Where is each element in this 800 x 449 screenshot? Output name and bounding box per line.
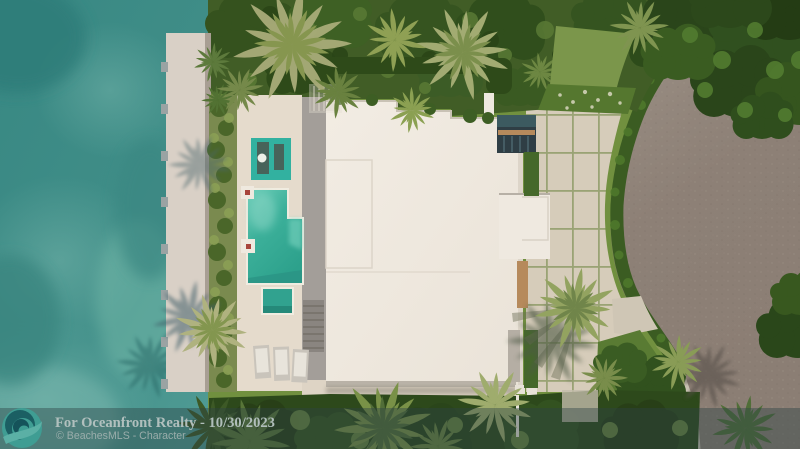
svg-text:© BeachesMLS - Character: © BeachesMLS - Character [56, 430, 186, 442]
svg-text:For Oceanfront Realty - 10/30/: For Oceanfront Realty - 10/30/2023 [55, 415, 275, 431]
